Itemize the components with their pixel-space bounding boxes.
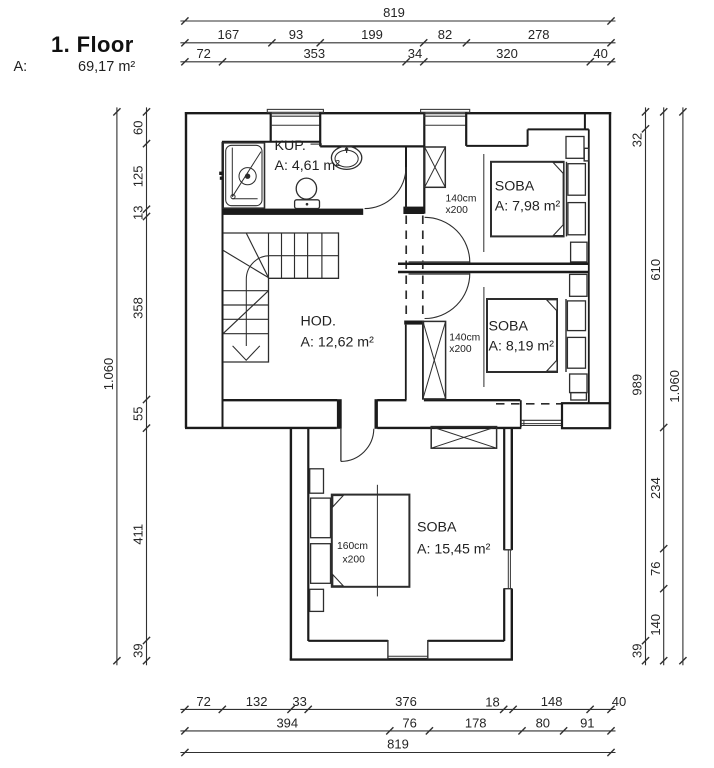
svg-text:A: 12,62 m²: A: 12,62 m² — [301, 335, 375, 351]
svg-text:320: 320 — [496, 46, 518, 61]
svg-text:34: 34 — [408, 46, 422, 61]
svg-text:989: 989 — [630, 374, 645, 396]
svg-text:x200: x200 — [446, 205, 469, 216]
svg-text:76: 76 — [402, 716, 416, 731]
svg-text:72: 72 — [196, 46, 210, 61]
svg-text:82: 82 — [438, 27, 452, 42]
svg-text:32: 32 — [630, 133, 645, 147]
svg-text:A: 15,45 m²: A: 15,45 m² — [417, 542, 491, 558]
svg-text:394: 394 — [276, 716, 298, 731]
svg-text:376: 376 — [395, 694, 417, 709]
svg-text:411: 411 — [131, 524, 146, 545]
svg-text:358: 358 — [131, 297, 146, 319]
svg-text:148: 148 — [541, 694, 563, 709]
svg-text:HOD.: HOD. — [301, 314, 336, 330]
svg-text:69,17 m²: 69,17 m² — [78, 59, 135, 75]
svg-text:167: 167 — [218, 27, 240, 42]
svg-text:40: 40 — [612, 694, 626, 709]
svg-text:353: 353 — [303, 46, 325, 61]
svg-text:55: 55 — [131, 407, 146, 421]
svg-text:x200: x200 — [343, 555, 366, 566]
svg-text:1.060: 1.060 — [667, 370, 682, 403]
svg-text:SOBA: SOBA — [417, 520, 457, 536]
svg-text:x200: x200 — [449, 344, 472, 355]
svg-text:199: 199 — [361, 27, 383, 42]
svg-text:SOBA: SOBA — [489, 319, 529, 335]
svg-text:140: 140 — [648, 614, 663, 636]
svg-text:40: 40 — [593, 46, 607, 61]
svg-text:819: 819 — [387, 737, 409, 752]
svg-text:1. Floor: 1. Floor — [51, 32, 134, 57]
svg-text:278: 278 — [528, 27, 550, 42]
svg-text:A: 7,98 m²: A: 7,98 m² — [495, 199, 561, 215]
svg-text:60: 60 — [131, 120, 146, 134]
svg-text:125: 125 — [131, 166, 146, 188]
svg-text:A: 4,61 m²: A: 4,61 m² — [275, 158, 341, 174]
svg-text:80: 80 — [536, 716, 550, 731]
svg-text:72: 72 — [196, 694, 210, 709]
svg-text:KUP.: KUP. — [275, 138, 306, 154]
svg-text:93: 93 — [289, 27, 303, 42]
svg-text:33: 33 — [292, 694, 306, 709]
svg-text:SOBA: SOBA — [495, 179, 535, 195]
svg-text:A:: A: — [14, 59, 28, 75]
svg-text:91: 91 — [580, 716, 594, 731]
svg-text:819: 819 — [383, 5, 405, 20]
svg-text:140cm: 140cm — [449, 332, 480, 343]
svg-text:76: 76 — [648, 561, 663, 575]
svg-text:140cm: 140cm — [446, 194, 477, 205]
svg-text:178: 178 — [465, 716, 487, 731]
svg-text:234: 234 — [648, 477, 663, 499]
svg-text:39: 39 — [630, 643, 645, 657]
svg-text:610: 610 — [648, 259, 663, 281]
svg-text:18: 18 — [485, 695, 499, 710]
svg-text:160cm: 160cm — [337, 541, 368, 552]
svg-text:1.060: 1.060 — [101, 358, 116, 391]
svg-text:39: 39 — [131, 643, 146, 657]
svg-text:A: 8,19 m²: A: 8,19 m² — [489, 339, 555, 355]
svg-text:13: 13 — [131, 206, 146, 220]
svg-text:132: 132 — [246, 694, 268, 709]
